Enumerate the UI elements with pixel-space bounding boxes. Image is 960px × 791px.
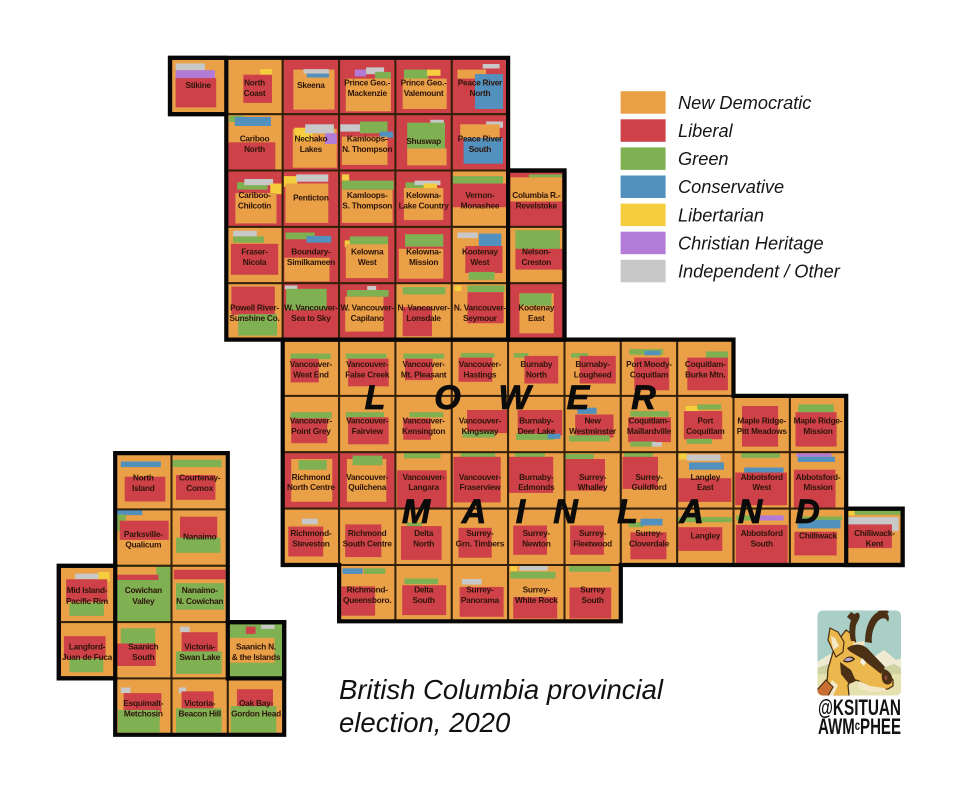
svg-text:Cloverdale: Cloverdale: [629, 539, 670, 549]
svg-text:West: West: [358, 257, 377, 267]
svg-text:Pitt Meadows: Pitt Meadows: [737, 426, 788, 436]
svg-text:Vancouver-: Vancouver-: [346, 359, 389, 369]
svg-text:Vernon-: Vernon-: [465, 190, 495, 200]
svg-text:W: W: [498, 379, 533, 417]
svg-text:M: M: [402, 493, 431, 531]
svg-text:Mission: Mission: [409, 257, 438, 267]
svg-text:Kent: Kent: [866, 539, 884, 549]
svg-text:Abbotsford-: Abbotsford-: [796, 472, 841, 482]
svg-text:Capilano: Capilano: [351, 313, 384, 323]
svg-text:Lonsdale: Lonsdale: [406, 313, 441, 323]
svg-text:Vancouver-: Vancouver-: [402, 359, 445, 369]
svg-text:N: N: [553, 493, 579, 531]
svg-text:Qualicum: Qualicum: [125, 539, 161, 549]
svg-text:Chilliwack-: Chilliwack-: [854, 528, 895, 538]
svg-text:Green: Green: [678, 149, 729, 169]
svg-text:Penticton: Penticton: [293, 193, 329, 203]
svg-text:L: L: [365, 379, 386, 417]
svg-text:East: East: [528, 313, 545, 323]
svg-text:Delta: Delta: [414, 585, 434, 595]
svg-text:South Centre: South Centre: [343, 539, 393, 549]
svg-text:Nanaimo: Nanaimo: [183, 531, 216, 541]
svg-text:North: North: [413, 539, 434, 549]
svg-text:Kootenay: Kootenay: [518, 303, 554, 313]
svg-text:Richmond-: Richmond-: [347, 585, 389, 595]
svg-text:Kelowna: Kelowna: [351, 246, 384, 256]
svg-text:Christian Heritage: Christian Heritage: [678, 233, 824, 253]
svg-text:Nechako: Nechako: [294, 134, 327, 144]
svg-text:Surrey-: Surrey-: [635, 472, 663, 482]
svg-text:W. Vancouver-: W. Vancouver-: [284, 303, 338, 313]
svg-text:Chilcotin: Chilcotin: [238, 201, 271, 211]
svg-text:Vancouver-: Vancouver-: [459, 359, 502, 369]
svg-text:Hastings: Hastings: [463, 370, 497, 380]
svg-text:Juan de Fuca: Juan de Fuca: [62, 652, 113, 662]
svg-text:Nelson-: Nelson-: [522, 246, 551, 256]
svg-text:Monashee: Monashee: [461, 201, 500, 211]
svg-text:Vancouver-: Vancouver-: [459, 472, 502, 482]
svg-text:Mid Island-: Mid Island-: [67, 585, 108, 595]
svg-text:British Columbia provincial: British Columbia provincial: [339, 674, 664, 705]
svg-text:Mackenzie: Mackenzie: [348, 88, 388, 98]
svg-text:Cowichan: Cowichan: [125, 585, 162, 595]
svg-text:Vancouver-: Vancouver-: [459, 415, 502, 425]
svg-text:North: North: [469, 88, 490, 98]
svg-text:I: I: [516, 493, 527, 531]
svg-text:Gordon Head: Gordon Head: [231, 708, 281, 718]
svg-text:North: North: [133, 473, 154, 483]
svg-text:Fraser-: Fraser-: [241, 246, 268, 256]
svg-text:N. Vancouver-: N. Vancouver-: [398, 303, 451, 313]
svg-text:A: A: [678, 493, 704, 531]
svg-text:West: West: [752, 482, 771, 492]
svg-text:Kingsway: Kingsway: [462, 426, 499, 436]
svg-text:Similkameen: Similkameen: [287, 257, 335, 267]
svg-text:R: R: [631, 379, 656, 417]
svg-text:Maple Ridge-: Maple Ridge-: [794, 415, 843, 425]
svg-text:A: A: [461, 493, 487, 531]
svg-text:South: South: [469, 144, 491, 154]
svg-text:Abbotsford: Abbotsford: [741, 472, 783, 482]
svg-text:Point Grey: Point Grey: [291, 426, 331, 436]
svg-text:S. Thompson: S. Thompson: [342, 201, 392, 211]
svg-text:Comox: Comox: [186, 483, 214, 493]
svg-text:South: South: [412, 595, 434, 605]
svg-text:Cariboo-: Cariboo-: [238, 190, 271, 200]
svg-text:N: N: [738, 493, 764, 531]
svg-text:Coquitlam-: Coquitlam-: [685, 359, 726, 369]
svg-text:West: West: [471, 257, 490, 267]
svg-text:Surrey-: Surrey-: [466, 585, 494, 595]
svg-text:Metchosin: Metchosin: [124, 708, 163, 718]
svg-text:Langford-: Langford-: [69, 642, 106, 652]
svg-text:Independent / Other: Independent / Other: [678, 262, 841, 282]
svg-text:Island: Island: [132, 483, 155, 493]
svg-text:Surrey-: Surrey-: [523, 528, 551, 538]
svg-text:Lakes: Lakes: [300, 144, 323, 154]
svg-text:Newton: Newton: [522, 539, 551, 549]
svg-text:Vancouver-: Vancouver-: [402, 472, 445, 482]
svg-text:L: L: [617, 493, 638, 531]
svg-text:Surrey-: Surrey-: [635, 528, 663, 538]
svg-text:Fairview: Fairview: [352, 426, 384, 436]
svg-text:South: South: [581, 595, 603, 605]
svg-text:AWMcPHEE: AWMcPHEE: [818, 714, 901, 739]
svg-text:Surrey: Surrey: [580, 585, 605, 595]
svg-text:Creston: Creston: [521, 257, 551, 267]
svg-text:Guildford: Guildford: [631, 482, 666, 492]
svg-text:Steveston: Steveston: [292, 539, 330, 549]
svg-text:North: North: [244, 77, 265, 87]
svg-text:Cariboo: Cariboo: [240, 134, 270, 144]
svg-text:East: East: [697, 482, 714, 492]
svg-text:Skeena: Skeena: [297, 80, 325, 90]
svg-text:Queensboro.: Queensboro.: [343, 595, 391, 605]
svg-text:West End: West End: [293, 370, 329, 380]
svg-text:Langley: Langley: [690, 472, 720, 482]
svg-text:Kelowna-: Kelowna-: [406, 246, 441, 256]
svg-text:Langley: Langley: [690, 531, 720, 541]
svg-text:Surrey-: Surrey-: [523, 585, 551, 595]
svg-text:Prince Geo.-: Prince Geo.-: [401, 77, 447, 87]
svg-text:Westminster: Westminster: [569, 426, 617, 436]
svg-text:Sea to Sky: Sea to Sky: [291, 313, 331, 323]
svg-text:Boundary-: Boundary-: [291, 246, 331, 256]
svg-text:Burnaby-: Burnaby-: [575, 359, 610, 369]
svg-text:Quilchena: Quilchena: [348, 482, 386, 492]
svg-text:Nicola: Nicola: [243, 257, 267, 267]
svg-text:Kamloops-: Kamloops-: [347, 134, 388, 144]
svg-text:Stikine: Stikine: [185, 80, 211, 90]
svg-text:Kamloops-: Kamloops-: [347, 190, 388, 200]
svg-text:Mission: Mission: [803, 426, 832, 436]
svg-text:Langara: Langara: [408, 482, 439, 492]
svg-text:election, 2020: election, 2020: [339, 707, 511, 738]
svg-text:Revelstoke: Revelstoke: [516, 201, 558, 211]
svg-text:Surrey-: Surrey-: [579, 528, 607, 538]
svg-text:Maillardville: Maillardville: [627, 426, 672, 436]
svg-text:Conservative: Conservative: [678, 177, 784, 197]
svg-text:Chilliwack: Chilliwack: [799, 531, 838, 541]
svg-text:Deer Lake: Deer Lake: [518, 426, 556, 436]
svg-text:Kelowna-: Kelowna-: [406, 190, 441, 200]
svg-text:Lake Country: Lake Country: [399, 201, 450, 211]
svg-text:Seymour: Seymour: [463, 313, 498, 323]
svg-text:Port: Port: [697, 415, 713, 425]
svg-text:North Centre: North Centre: [287, 482, 335, 492]
svg-text:Richmond-: Richmond-: [290, 528, 332, 538]
svg-text:Esquimalt-: Esquimalt-: [123, 698, 163, 708]
svg-text:Valley: Valley: [132, 596, 155, 606]
svg-text:Pacific Rim: Pacific Rim: [66, 596, 108, 606]
svg-text:E: E: [567, 379, 591, 417]
svg-text:Shuswap: Shuswap: [406, 136, 441, 146]
svg-text:W. Vancouver-: W. Vancouver-: [340, 303, 394, 313]
svg-text:N. Vancouver-: N. Vancouver-: [454, 303, 507, 313]
svg-text:Courtenay-: Courtenay-: [179, 473, 221, 483]
svg-text:Edmonds: Edmonds: [518, 482, 555, 492]
svg-text:Sunshine Co.: Sunshine Co.: [229, 313, 279, 323]
svg-text:D: D: [795, 493, 820, 531]
svg-text:Victoria-: Victoria-: [184, 698, 215, 708]
svg-text:Burke Mtn.: Burke Mtn.: [685, 370, 725, 380]
svg-text:Victoria-: Victoria-: [184, 642, 215, 652]
svg-text:New Democratic: New Democratic: [678, 93, 811, 113]
svg-text:South: South: [751, 539, 773, 549]
svg-text:Peace River: Peace River: [458, 77, 503, 87]
svg-text:Burnaby-: Burnaby-: [519, 472, 554, 482]
svg-text:Fraserview: Fraserview: [459, 482, 501, 492]
svg-text:Surrey-: Surrey-: [579, 472, 607, 482]
svg-text:Vancouver-: Vancouver-: [290, 359, 333, 369]
svg-text:Powell River-: Powell River-: [230, 303, 279, 313]
svg-text:Richmond: Richmond: [348, 528, 387, 538]
svg-text:O: O: [434, 379, 460, 417]
svg-text:N. Thompson: N. Thompson: [342, 144, 392, 154]
svg-text:Saanich: Saanich: [128, 642, 158, 652]
svg-text:White Rock: White Rock: [515, 595, 558, 605]
svg-text:South: South: [132, 652, 154, 662]
svg-text:Burnaby: Burnaby: [520, 359, 553, 369]
svg-text:Grn. Timbers: Grn. Timbers: [456, 539, 505, 549]
svg-text:Vancouver-: Vancouver-: [346, 472, 389, 482]
svg-text:Maple Ridge-: Maple Ridge-: [737, 415, 786, 425]
svg-text:Kensington: Kensington: [402, 426, 445, 436]
svg-text:Saanich N.: Saanich N.: [236, 642, 276, 652]
svg-text:Richmond: Richmond: [292, 472, 331, 482]
svg-text:Valemount: Valemount: [404, 88, 444, 98]
svg-text:Oak Bay-: Oak Bay-: [239, 698, 273, 708]
svg-text:Nanaimo-: Nanaimo-: [182, 585, 218, 595]
svg-text:Coquitlam: Coquitlam: [686, 426, 724, 436]
svg-text:N. Cowichan: N. Cowichan: [176, 596, 223, 606]
svg-text:Vancouver-: Vancouver-: [290, 415, 333, 425]
svg-text:Beacon Hill: Beacon Hill: [178, 708, 220, 718]
svg-text:Fleetwood: Fleetwood: [573, 539, 612, 549]
svg-text:Mission: Mission: [803, 482, 832, 492]
svg-text:Liberal: Liberal: [678, 121, 734, 141]
svg-text:Peace River: Peace River: [458, 134, 503, 144]
svg-text:Coast: Coast: [244, 88, 266, 98]
svg-text:Libertarian: Libertarian: [678, 205, 764, 225]
svg-text:Panorama: Panorama: [461, 595, 500, 605]
svg-text:Columbia R.-: Columbia R.-: [512, 190, 561, 200]
svg-text:Whalley: Whalley: [578, 482, 608, 492]
svg-text:Port Moody-: Port Moody-: [626, 359, 672, 369]
svg-text:Prince Geo.-: Prince Geo.-: [344, 77, 390, 87]
svg-text:Parksville-: Parksville-: [124, 529, 163, 539]
svg-text:North: North: [244, 144, 265, 154]
svg-text:Swan Lake: Swan Lake: [179, 652, 220, 662]
svg-text:Kootenay: Kootenay: [462, 246, 498, 256]
svg-text:& the Islands: & the Islands: [232, 652, 281, 662]
